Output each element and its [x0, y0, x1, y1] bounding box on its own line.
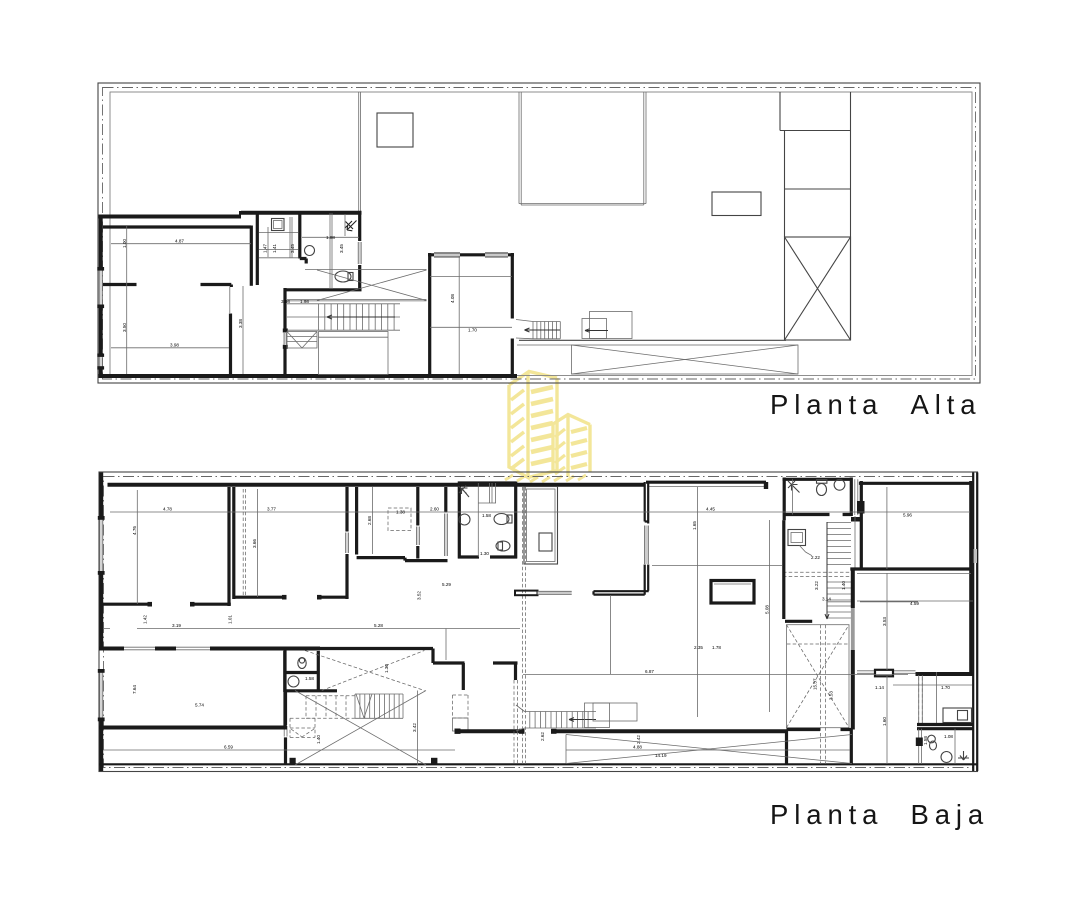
svg-text:4.78: 4.78: [163, 507, 172, 512]
svg-text:3.19: 3.19: [172, 623, 181, 628]
svg-text:1.65: 1.65: [692, 521, 697, 530]
svg-text:4.45: 4.45: [706, 507, 715, 512]
svg-text:1.40: 1.40: [841, 581, 846, 590]
svg-text:4.88: 4.88: [633, 745, 642, 750]
svg-text:3.52: 3.52: [417, 591, 422, 600]
svg-text:1.30: 1.30: [384, 664, 389, 673]
svg-text:3.98: 3.98: [281, 299, 290, 304]
svg-text:1.14: 1.14: [875, 685, 884, 690]
svg-text:1.01: 1.01: [228, 615, 233, 624]
svg-text:4.76: 4.76: [132, 526, 137, 535]
svg-text:4.08: 4.08: [450, 294, 455, 303]
svg-text:1.78: 1.78: [712, 645, 721, 650]
svg-text:1.08: 1.08: [944, 734, 953, 739]
svg-text:5.29: 5.29: [442, 582, 451, 587]
svg-text:1.58: 1.58: [305, 676, 314, 681]
svg-text:7.64: 7.64: [132, 685, 137, 694]
svg-text:3.38: 3.38: [238, 319, 243, 328]
svg-text:3.50: 3.50: [122, 323, 127, 332]
svg-text:4.59: 4.59: [910, 601, 919, 606]
svg-text:1.58: 1.58: [923, 736, 928, 745]
svg-text:3.77: 3.77: [267, 507, 276, 512]
svg-text:3.53: 3.53: [828, 691, 833, 700]
svg-text:4.87: 4.87: [175, 239, 184, 244]
svg-text:3.45: 3.45: [290, 244, 295, 253]
svg-text:2.22: 2.22: [811, 555, 820, 560]
svg-text:14.19: 14.19: [655, 753, 667, 758]
svg-text:1.38: 1.38: [396, 510, 405, 515]
svg-text:3.14: 3.14: [822, 597, 831, 602]
svg-text:Planta Alta: Planta Alta: [770, 389, 981, 420]
svg-text:6.87: 6.87: [645, 669, 654, 674]
svg-text:5.74: 5.74: [195, 703, 204, 708]
svg-text:1.70: 1.70: [468, 328, 477, 333]
svg-text:6.59: 6.59: [224, 745, 233, 750]
svg-text:3.98: 3.98: [170, 343, 179, 348]
svg-text:1.70: 1.70: [941, 685, 950, 690]
svg-text:3.42: 3.42: [412, 723, 417, 732]
svg-text:5.96: 5.96: [903, 513, 912, 518]
svg-text:5.28: 5.28: [374, 623, 383, 628]
svg-text:1.41: 1.41: [272, 244, 277, 253]
svg-text:1.60: 1.60: [882, 717, 887, 726]
svg-text:3.53: 3.53: [882, 617, 887, 626]
svg-text:2.62: 2.62: [540, 732, 545, 741]
svg-text:1.58: 1.58: [482, 513, 491, 518]
svg-text:3.66: 3.66: [252, 539, 257, 548]
svg-text:2.68: 2.68: [367, 516, 372, 525]
svg-text:2.35: 2.35: [694, 645, 703, 650]
svg-text:1.40: 1.40: [316, 735, 321, 744]
svg-text:1.42: 1.42: [143, 615, 148, 624]
svg-text:3.22: 3.22: [814, 581, 819, 590]
svg-text:2.42: 2.42: [636, 735, 641, 744]
svg-text:2.60: 2.60: [430, 507, 439, 512]
svg-text:1.98: 1.98: [300, 299, 309, 304]
svg-text:1.98: 1.98: [326, 235, 335, 240]
svg-text:1.00: 1.00: [122, 239, 127, 248]
svg-text:15.57: 15.57: [813, 678, 818, 690]
svg-text:3.45: 3.45: [339, 244, 344, 253]
svg-text:5.08: 5.08: [764, 605, 769, 614]
svg-text:Planta Baja: Planta Baja: [770, 799, 989, 830]
svg-text:1.30: 1.30: [480, 551, 489, 556]
svg-text:1.47: 1.47: [263, 244, 268, 253]
